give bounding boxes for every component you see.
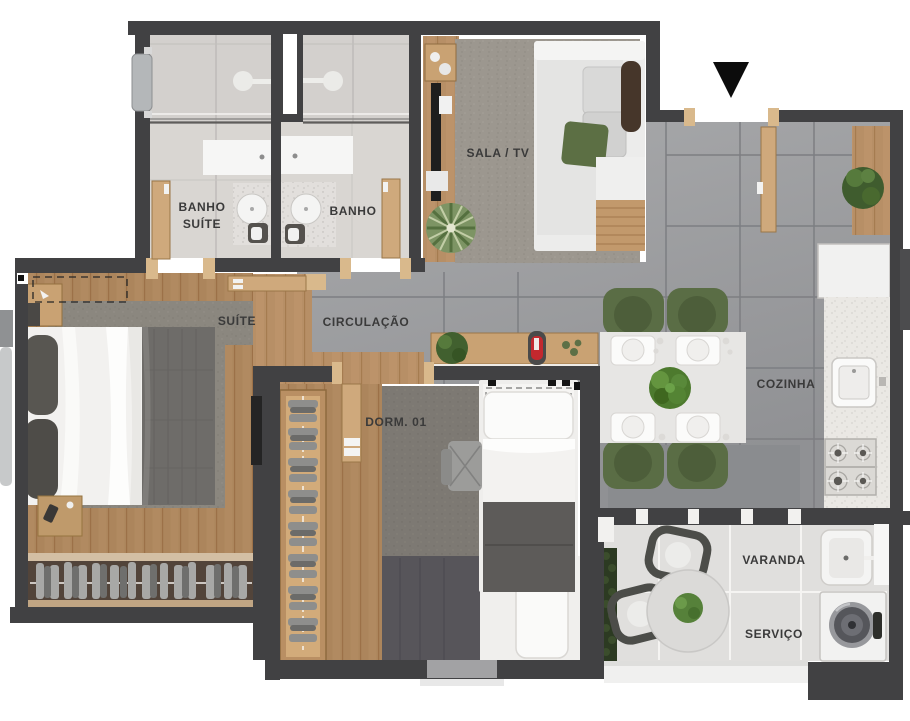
svg-text:SUÍTE: SUÍTE — [183, 216, 221, 231]
svg-text:SUÍTE: SUÍTE — [218, 313, 256, 328]
svg-text:DORM. 01: DORM. 01 — [365, 415, 426, 429]
svg-text:BANHO: BANHO — [330, 204, 377, 218]
svg-text:SERVIÇO: SERVIÇO — [745, 627, 803, 641]
svg-text:BANHO: BANHO — [179, 200, 226, 214]
svg-text:SALA / TV: SALA / TV — [467, 146, 530, 160]
svg-text:COZINHA: COZINHA — [757, 377, 816, 391]
svg-text:VARANDA: VARANDA — [742, 553, 805, 567]
svg-text:CIRCULAÇÃO: CIRCULAÇÃO — [323, 314, 410, 329]
